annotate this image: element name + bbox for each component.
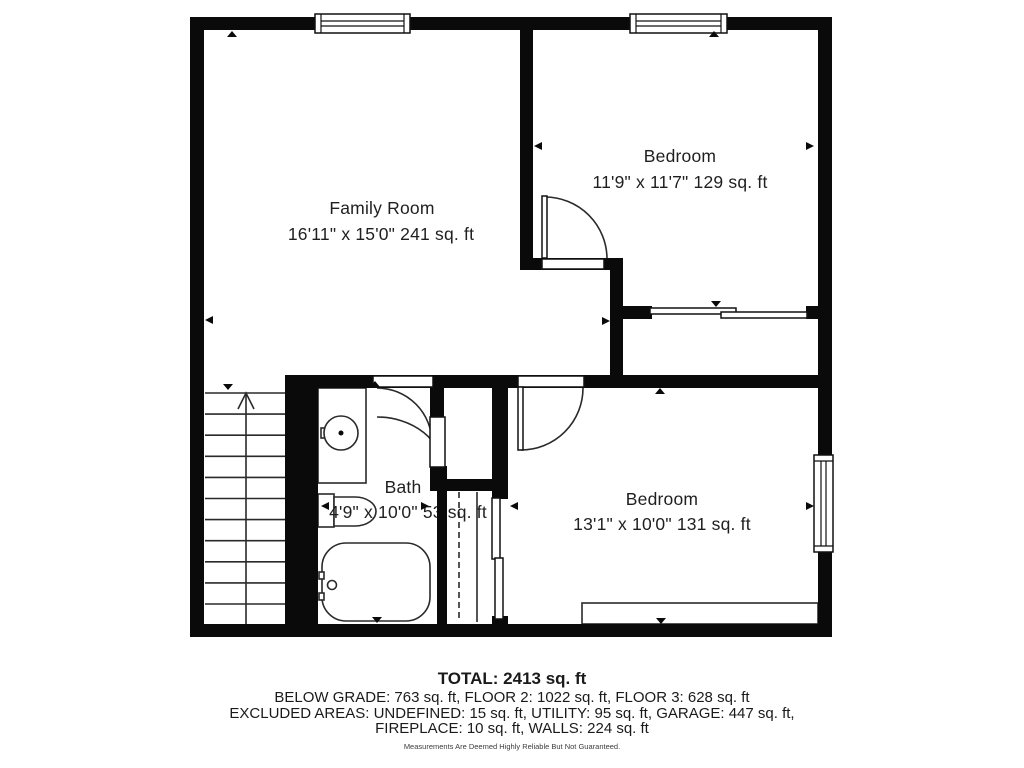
closet-sliding-panel-1	[492, 498, 500, 559]
floor-plan-walls	[0, 0, 1024, 768]
bath-door-leaf	[430, 417, 445, 467]
marker-right-bath-icon	[421, 502, 429, 510]
marker-left-bath-icon	[321, 502, 329, 510]
marker-right-bedroom2-icon	[806, 502, 814, 510]
floor-plan-page: Family Room 16'11" x 15'0" 241 sq. ft Be…	[0, 0, 1024, 768]
marker-right-bedroom1-icon	[806, 142, 814, 150]
bedroom2-window	[814, 455, 833, 552]
bedroom2-door-leaf	[518, 387, 523, 450]
wall-bath-closet-divider	[437, 491, 447, 625]
closet-sliding-panel-2	[495, 558, 503, 619]
bath-door-threshold	[373, 376, 433, 387]
wall-family-bedroom1	[520, 17, 533, 270]
marker-left-bedroom1-icon	[534, 142, 542, 150]
wall-left	[190, 17, 204, 637]
wall-stair-block	[285, 375, 318, 637]
marker-left-bedroom2-icon	[510, 502, 518, 510]
wall-top	[190, 17, 832, 30]
bedroom1-sliding-door-panel-2	[721, 312, 807, 318]
bedroom2-door-threshold	[518, 376, 584, 387]
walls	[190, 17, 832, 637]
wall-closet-right-upper	[492, 375, 508, 499]
bedroom1-door-leaf	[542, 196, 547, 258]
wall-closet-stub-left	[610, 306, 652, 319]
wall-closet-top	[437, 479, 498, 491]
marker-up-bedroom2-icon	[655, 388, 665, 394]
wall-bath-door-stub	[430, 388, 444, 418]
marker-up-family-icon	[227, 31, 237, 37]
bedroom1-door-threshold	[542, 259, 604, 269]
marker-left-family-icon	[205, 316, 213, 324]
family-room-window	[315, 14, 410, 33]
bedroom1-window	[630, 14, 727, 33]
marker-down-stairs-icon	[223, 384, 233, 390]
windows	[315, 14, 833, 552]
wall-hall-vertical	[610, 258, 623, 388]
marker-down-builtin-icon	[656, 618, 666, 624]
marker-down-sliding-icon	[711, 301, 721, 307]
wall-closet-stub-right	[806, 306, 832, 319]
marker-down-tub-icon	[372, 617, 382, 623]
marker-right-hall-icon	[602, 317, 610, 325]
